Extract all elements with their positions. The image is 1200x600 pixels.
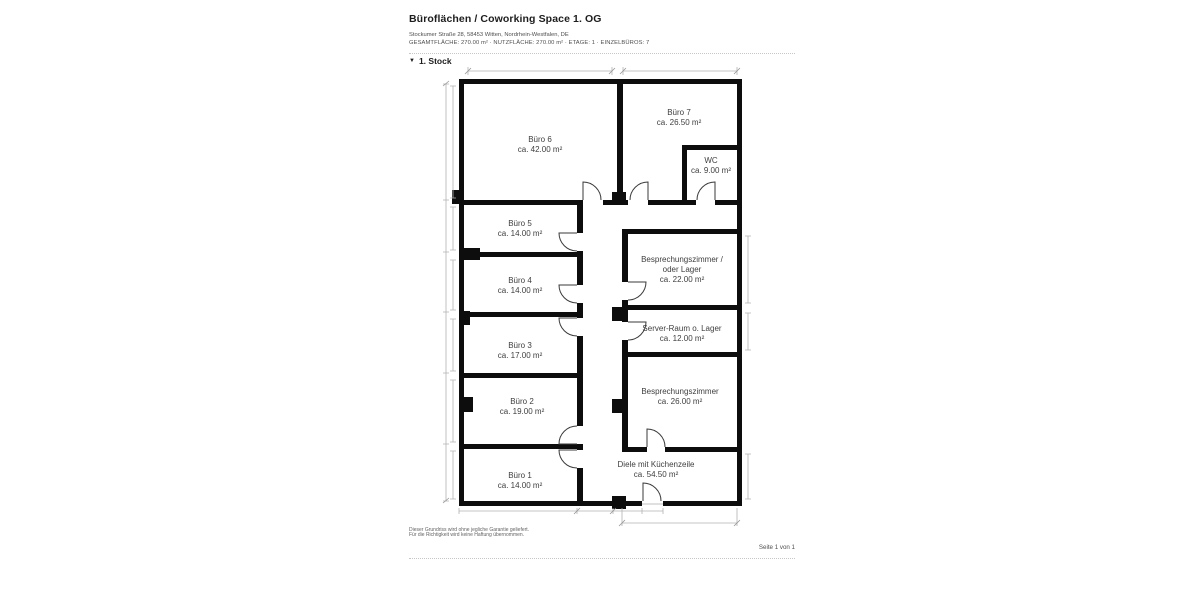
room-labels: Büro 6 ca. 42.00 m² Büro 7 ca. 26.50 m² … [498,108,732,490]
dimension-lines [443,67,751,526]
room-label-wc-area: ca. 9.00 m² [691,166,731,175]
room-label-buero-6-name: Büro 6 [528,135,552,144]
area-summary: GESAMTFLÄCHE: 270.00 m² · NUTZFLÄCHE: 27… [409,40,649,46]
room-label-buero-3-area: ca. 17.00 m² [498,351,543,360]
room-label-besprechung-lager-line2: oder Lager [663,265,702,274]
page-number: Seite 1 von 1 [409,544,795,551]
disclaimer-line-2: Für die Richtigkeit wird keine Haftung ü… [409,533,529,538]
room-label-buero-2-name: Büro 2 [510,397,534,406]
room-label-buero-1-name: Büro 1 [508,471,532,480]
separator-top [409,53,795,54]
room-label-buero-3-name: Büro 3 [508,341,532,350]
room-label-buero-1-area: ca. 14.00 m² [498,481,543,490]
room-label-besprechungszimmer-area: ca. 26.00 m² [658,397,703,406]
property-address: Stockumer Straße 28, 58453 Witten, Nordr… [409,32,649,38]
room-label-buero-6-area: ca. 42.00 m² [518,145,563,154]
triangle-down-icon: ▼ [409,58,415,64]
floor-plan: Büro 6 ca. 42.00 m² Büro 7 ca. 26.50 m² … [440,62,760,537]
separator-bottom [409,558,795,559]
room-label-serverraum-name: Server-Raum o. Lager [642,324,721,333]
room-label-diele-name: Diele mit Küchenzeile [618,460,695,469]
room-label-serverraum-area: ca. 12.00 m² [660,334,705,343]
room-label-buero-5-area: ca. 14.00 m² [498,229,543,238]
walls [452,79,742,509]
room-label-buero-7-name: Büro 7 [667,108,691,117]
room-label-buero-7-area: ca. 26.50 m² [657,118,702,127]
page-title: Büroflächen / Coworking Space 1. OG [409,13,649,25]
room-label-buero-4-name: Büro 4 [508,276,532,285]
room-label-buero-5-name: Büro 5 [508,219,532,228]
room-label-buero-2-area: ca. 19.00 m² [500,407,545,416]
room-label-besprechung-lager-area: ca. 22.00 m² [660,275,705,284]
room-label-besprechung-lager-line1: Besprechungszimmer / [641,255,724,264]
disclaimer: Dieser Grundriss wird ohne jegliche Gara… [409,528,529,538]
page-header: Büroflächen / Coworking Space 1. OG Stoc… [409,13,649,46]
room-label-besprechungszimmer-name: Besprechungszimmer [641,387,719,396]
room-label-buero-4-area: ca. 14.00 m² [498,286,543,295]
room-label-wc-name: WC [704,156,718,165]
expose-page: Büroflächen / Coworking Space 1. OG Stoc… [0,0,1200,600]
room-label-diele-area: ca. 54.50 m² [634,470,679,479]
